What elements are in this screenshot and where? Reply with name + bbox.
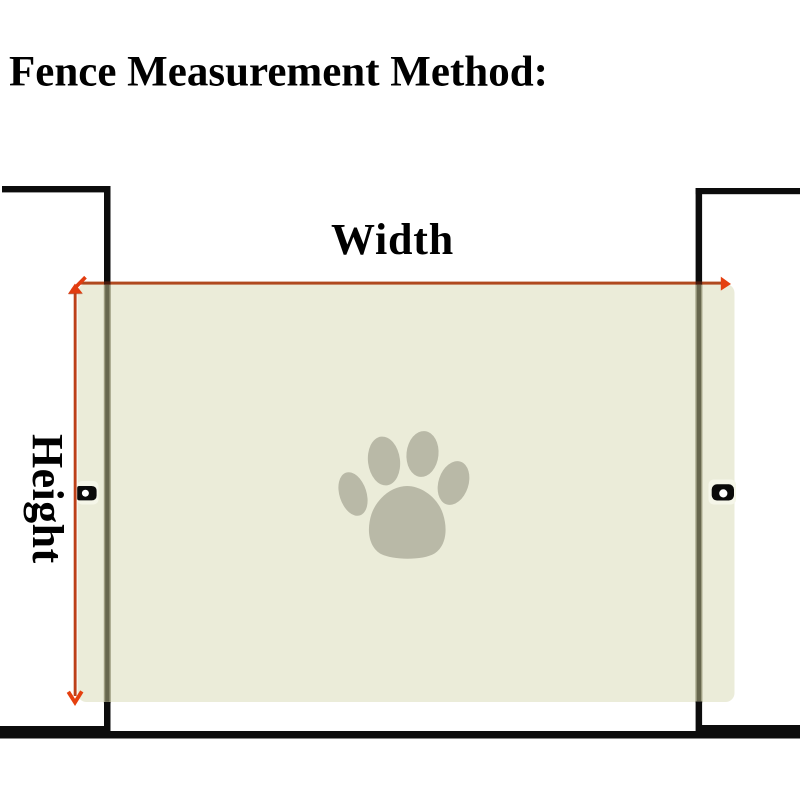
svg-text:Height: Height [23, 434, 72, 564]
svg-text:Fence Measurement Method:: Fence Measurement Method: [9, 49, 548, 96]
svg-text:Width: Width [331, 215, 454, 264]
